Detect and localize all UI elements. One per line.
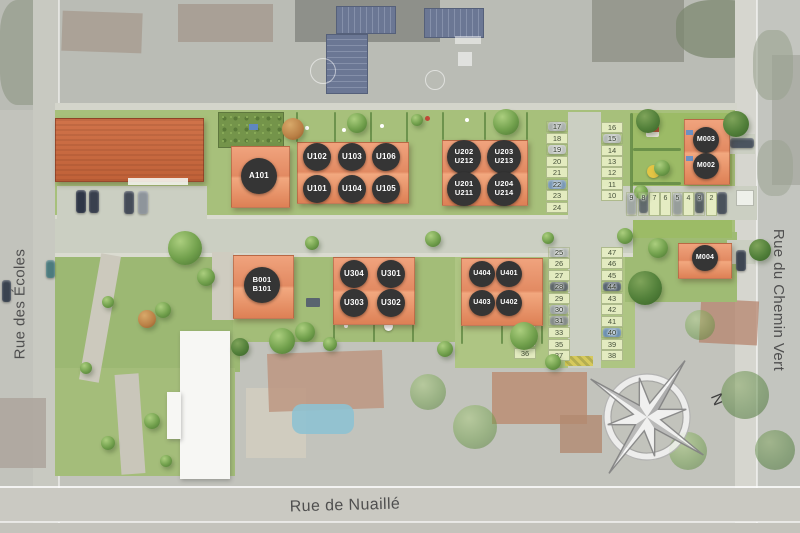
unit-badge-line: U212: [455, 157, 474, 166]
parking-spot: 35: [548, 339, 570, 350]
aerial-house-roof: [267, 350, 384, 412]
street-label-left: Rue des Écoles: [12, 222, 30, 387]
parking-spot: 16: [601, 122, 623, 133]
parking-spot: 8: [638, 192, 649, 216]
car: [76, 190, 86, 213]
parking-spot: 13: [601, 156, 623, 167]
car: [89, 190, 99, 213]
hedge: [406, 112, 408, 142]
red-item: [425, 116, 430, 121]
tree: [437, 341, 453, 357]
playground-marking: [458, 52, 472, 66]
white-building-annex: [167, 392, 181, 439]
tree: [347, 113, 367, 133]
roof-window: [686, 156, 693, 161]
unit-badge-u201-u211[interactable]: U201 U211: [447, 172, 481, 206]
white-building: [180, 331, 230, 479]
tree: [545, 354, 561, 370]
hedge: [501, 324, 503, 344]
aerial-building: [592, 0, 684, 62]
hedge: [633, 148, 681, 151]
hedge: [334, 112, 336, 142]
car: [124, 191, 134, 214]
unit-badge-line: U211: [455, 189, 473, 198]
tree: [628, 271, 662, 305]
unit-badge-u304[interactable]: U304: [340, 260, 368, 288]
tree: [160, 455, 172, 467]
tree: [493, 109, 519, 135]
path-north: [55, 103, 737, 110]
unit-badge-u301[interactable]: U301: [377, 260, 405, 288]
tree: [617, 228, 633, 244]
parking-spot: 45: [601, 270, 623, 281]
tree: [323, 337, 337, 351]
blue-item: [249, 124, 258, 130]
tree: [723, 111, 749, 137]
parking-spot: 46: [601, 258, 623, 269]
unit-badge-line: B101: [253, 285, 272, 294]
tree: [636, 109, 660, 133]
tree: [155, 302, 171, 318]
parking-spot: 20: [546, 156, 568, 167]
unit-badge-u303[interactable]: U303: [340, 289, 368, 317]
tree: [168, 231, 202, 265]
car: [138, 191, 148, 214]
unit-badge-m004[interactable]: M004: [692, 245, 718, 271]
car: [736, 250, 746, 271]
solar-panels: [424, 8, 484, 38]
unit-badge-u104[interactable]: U104: [338, 175, 366, 203]
tree: [411, 114, 423, 126]
parking-spot: 22: [546, 179, 568, 190]
parking-spot: 4: [683, 192, 694, 216]
parking-spot: 3: [694, 192, 705, 216]
parking-spot: 26: [548, 258, 570, 269]
parking-spot: 44: [601, 281, 623, 292]
unit-badge-a101[interactable]: A101: [241, 158, 277, 194]
site-plan: 17 18 19 20 21 22 23 24 16 15 14 13 12 1…: [0, 0, 800, 533]
unit-badge-u202-u212[interactable]: U202 U212: [447, 140, 481, 174]
aerial-house-roof: [0, 398, 46, 468]
aerial-pool: [292, 404, 354, 434]
tree: [749, 239, 771, 261]
hedge: [442, 112, 444, 140]
parking-spot: 21: [546, 167, 568, 178]
tree: [197, 268, 215, 286]
unit-badge-u105[interactable]: U105: [372, 175, 400, 203]
parking-spot: 2: [706, 192, 717, 216]
parking-spot: 9: [626, 192, 637, 216]
garden-table: [465, 118, 469, 122]
aerial-roof: [61, 11, 142, 54]
garden-table: [380, 124, 384, 128]
unit-badge-u403[interactable]: U403: [469, 290, 495, 316]
tree: [80, 362, 92, 374]
playground-marking: [455, 36, 481, 44]
parking-spot: 19: [546, 144, 568, 155]
parking-spot: 47: [601, 247, 623, 258]
bike-shelter: [306, 298, 320, 307]
parking-spot: 15: [601, 133, 623, 144]
parking-spot: 18: [546, 133, 568, 144]
garden-table: [305, 126, 309, 130]
parking-spot: 33: [548, 327, 570, 338]
unit-badge-u106[interactable]: U106: [372, 143, 400, 171]
unit-badge-u302[interactable]: U302: [377, 289, 405, 317]
tree: [648, 238, 668, 258]
unit-badge-u101[interactable]: U101: [303, 175, 331, 203]
hedge: [526, 112, 528, 140]
existing-school-building: [55, 118, 204, 182]
aerial-trees: [753, 30, 793, 100]
hedge: [541, 324, 543, 344]
parking-spot: 24: [546, 202, 568, 213]
parking-aisle-north: [568, 112, 601, 220]
playground-marking: [425, 70, 445, 90]
parking-spot: 28: [548, 281, 570, 292]
unit-badge-u203-u213[interactable]: U203 U213: [487, 140, 521, 174]
unit-badge-u204-u214[interactable]: U204 U214: [487, 172, 521, 206]
unit-badge-m002[interactable]: M002: [693, 153, 719, 179]
parking-spot: 29: [548, 293, 570, 304]
aerial-trees: [757, 140, 793, 196]
tree: [144, 413, 160, 429]
unit-badge-line: U214: [495, 189, 514, 198]
car: [730, 138, 754, 148]
parking-spot: 42: [601, 304, 623, 315]
parking-spot: 17: [546, 121, 568, 132]
tree: [269, 328, 295, 354]
tree: [305, 236, 319, 250]
unit-badge-u102[interactable]: U102: [303, 143, 331, 171]
parking-spot: 11: [601, 179, 623, 190]
planting-patch: [218, 112, 284, 148]
unit-badge-b001-b101[interactable]: B001 B101: [244, 267, 280, 303]
parking-spot: 41: [601, 316, 623, 327]
tree: [295, 322, 315, 342]
parking-spot: 6: [660, 192, 671, 216]
unit-badge-m003[interactable]: M003: [693, 127, 719, 153]
tree: [755, 430, 795, 470]
unit-badge-u401[interactable]: U401: [496, 261, 522, 287]
tree: [453, 405, 497, 449]
hedge: [461, 324, 463, 344]
path: [212, 252, 234, 320]
hedge: [373, 323, 375, 342]
unit-badge-u103[interactable]: U103: [338, 143, 366, 171]
canopy: [128, 178, 188, 185]
tree: [542, 232, 554, 244]
tree: [721, 371, 769, 419]
tree: [282, 118, 304, 140]
parking-spot: 10: [601, 190, 623, 201]
tree: [231, 338, 249, 356]
parking-spot: 23: [546, 190, 568, 201]
garden-table: [342, 128, 346, 132]
hedge: [484, 112, 486, 140]
shed: [736, 190, 754, 206]
tree: [654, 160, 670, 176]
parking-spot: 43: [601, 293, 623, 304]
parking-spot: 40: [601, 327, 623, 338]
tree: [101, 436, 115, 450]
parking-spot: 25: [548, 247, 570, 258]
compass-north-label: N: [707, 391, 722, 408]
aerial-roof: [178, 4, 273, 42]
car: [2, 280, 11, 302]
tree: [102, 296, 114, 308]
tree: [510, 322, 538, 350]
parking-spot: 12: [601, 167, 623, 178]
compass-rose: N: [572, 342, 722, 492]
parking-spot: 7: [649, 192, 660, 216]
tree: [685, 310, 715, 340]
car: [717, 192, 727, 214]
sidewalk-bottom: [0, 523, 800, 533]
tree: [425, 231, 441, 247]
unit-badge-u404[interactable]: U404: [469, 261, 495, 287]
parking-spot: 14: [601, 145, 623, 156]
playground-marking: [310, 58, 336, 84]
parking-spot: 5: [672, 192, 683, 216]
parking-spot: 31: [548, 315, 570, 326]
roof-window: [686, 130, 693, 135]
tree: [138, 310, 156, 328]
unit-badge-u402[interactable]: U402: [496, 290, 522, 316]
solar-panels: [336, 6, 396, 34]
unit-badge-line: U213: [495, 157, 514, 166]
tree: [410, 374, 446, 410]
street-label-right: Rue du Chemin Vert: [769, 205, 787, 395]
parking-spot: 27: [548, 270, 570, 281]
hedge: [370, 112, 372, 142]
car: [46, 260, 55, 278]
parking-spot: 30: [548, 304, 570, 315]
hedge: [412, 323, 414, 342]
